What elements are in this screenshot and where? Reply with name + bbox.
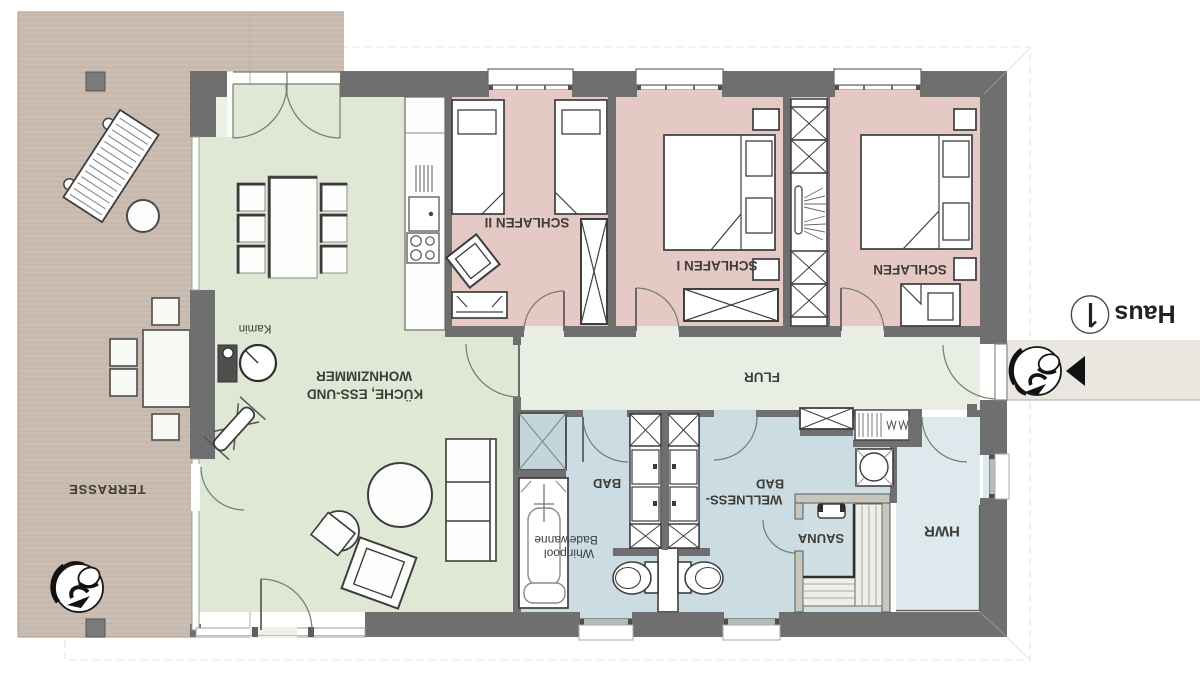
svg-text:Haus: Haus — [1114, 300, 1175, 328]
svg-text:Kamin: Kamin — [239, 322, 272, 334]
svg-text:KÜCHE, ESS-UND: KÜCHE, ESS-UND — [307, 387, 424, 402]
svg-text:WELLNESS-: WELLNESS- — [706, 493, 783, 508]
svg-text:Badewanne: Badewanne — [534, 533, 598, 547]
svg-text:WOHNZIMMER: WOHNZIMMER — [316, 369, 412, 384]
svg-text:HWR: HWR — [924, 523, 960, 540]
svg-text:SAUNA: SAUNA — [797, 531, 844, 546]
svg-text:BAD: BAD — [756, 477, 784, 492]
svg-text:FLUR: FLUR — [744, 370, 780, 385]
svg-text:SCHLAFEN II: SCHLAFEN II — [485, 215, 570, 230]
svg-text:Whirlpool: Whirlpool — [544, 547, 594, 561]
svg-text:BAD: BAD — [593, 476, 621, 491]
svg-text:SCHLAFEN: SCHLAFEN — [873, 262, 947, 277]
svg-text:TERRASSE: TERRASSE — [68, 482, 145, 497]
svg-text:SCHLAFEN I: SCHLAFEN I — [677, 258, 758, 273]
